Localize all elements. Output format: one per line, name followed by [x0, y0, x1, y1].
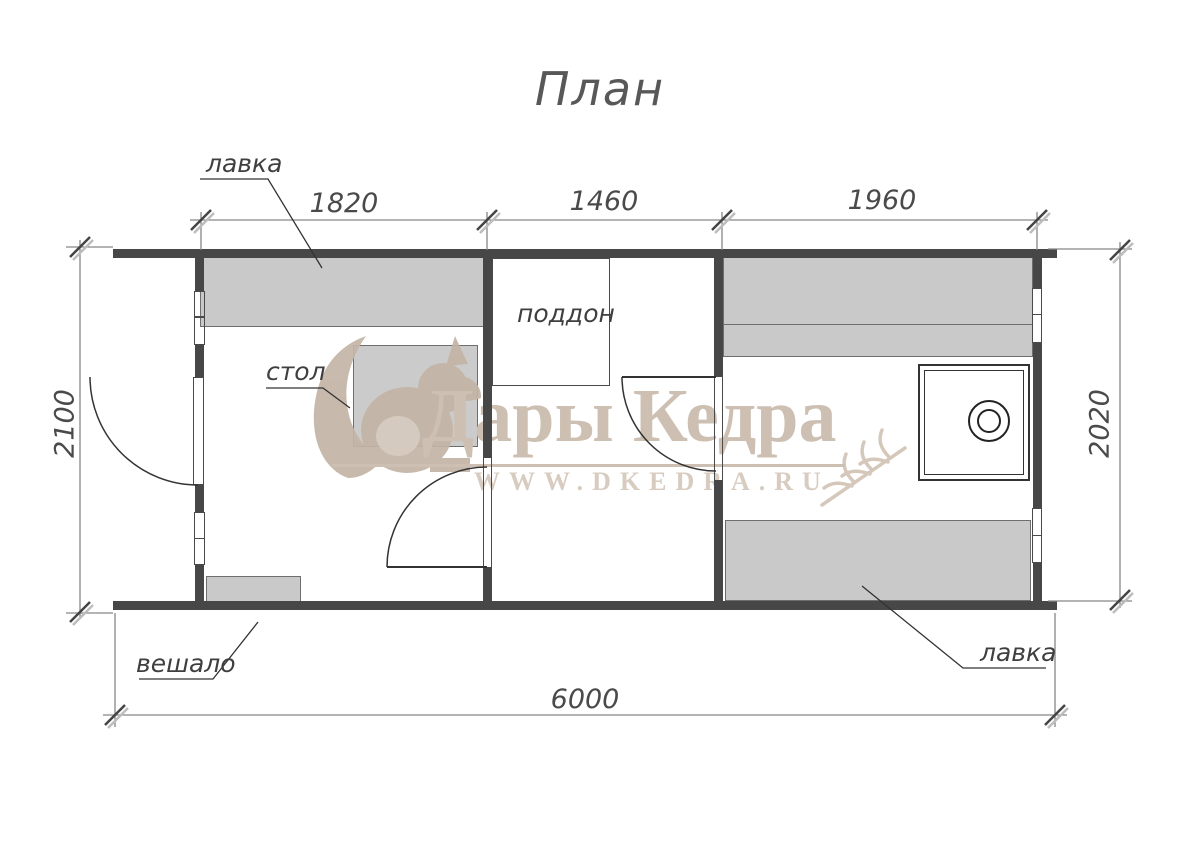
label-bench-bottom: лавка: [980, 638, 1056, 667]
door-arc-room2-room3: [622, 377, 716, 471]
label-hanger: вешало: [136, 649, 236, 678]
label-shower-tray: поддон: [517, 299, 615, 328]
page-title: План: [480, 62, 720, 116]
leader-lines: [139, 179, 1046, 679]
dim-left-height: 2100: [50, 369, 81, 479]
door-arc-room1-room2: [387, 467, 487, 567]
dim-room3-width: 1960: [827, 185, 937, 216]
linework-overlay: [0, 0, 1200, 848]
dim-room2-width: 1460: [549, 186, 659, 217]
label-table: стол: [266, 357, 326, 386]
label-bench-top: лавка: [206, 149, 282, 178]
dim-bottom-total: 6000: [530, 684, 640, 715]
tick-marks: [70, 210, 1130, 725]
floor-plan-canvas: План Дары Кедра WWW.D: [0, 0, 1200, 848]
entry-door-arc: [90, 377, 198, 485]
dim-right-height: 2020: [1085, 369, 1116, 479]
dim-room1-width: 1820: [289, 188, 399, 219]
